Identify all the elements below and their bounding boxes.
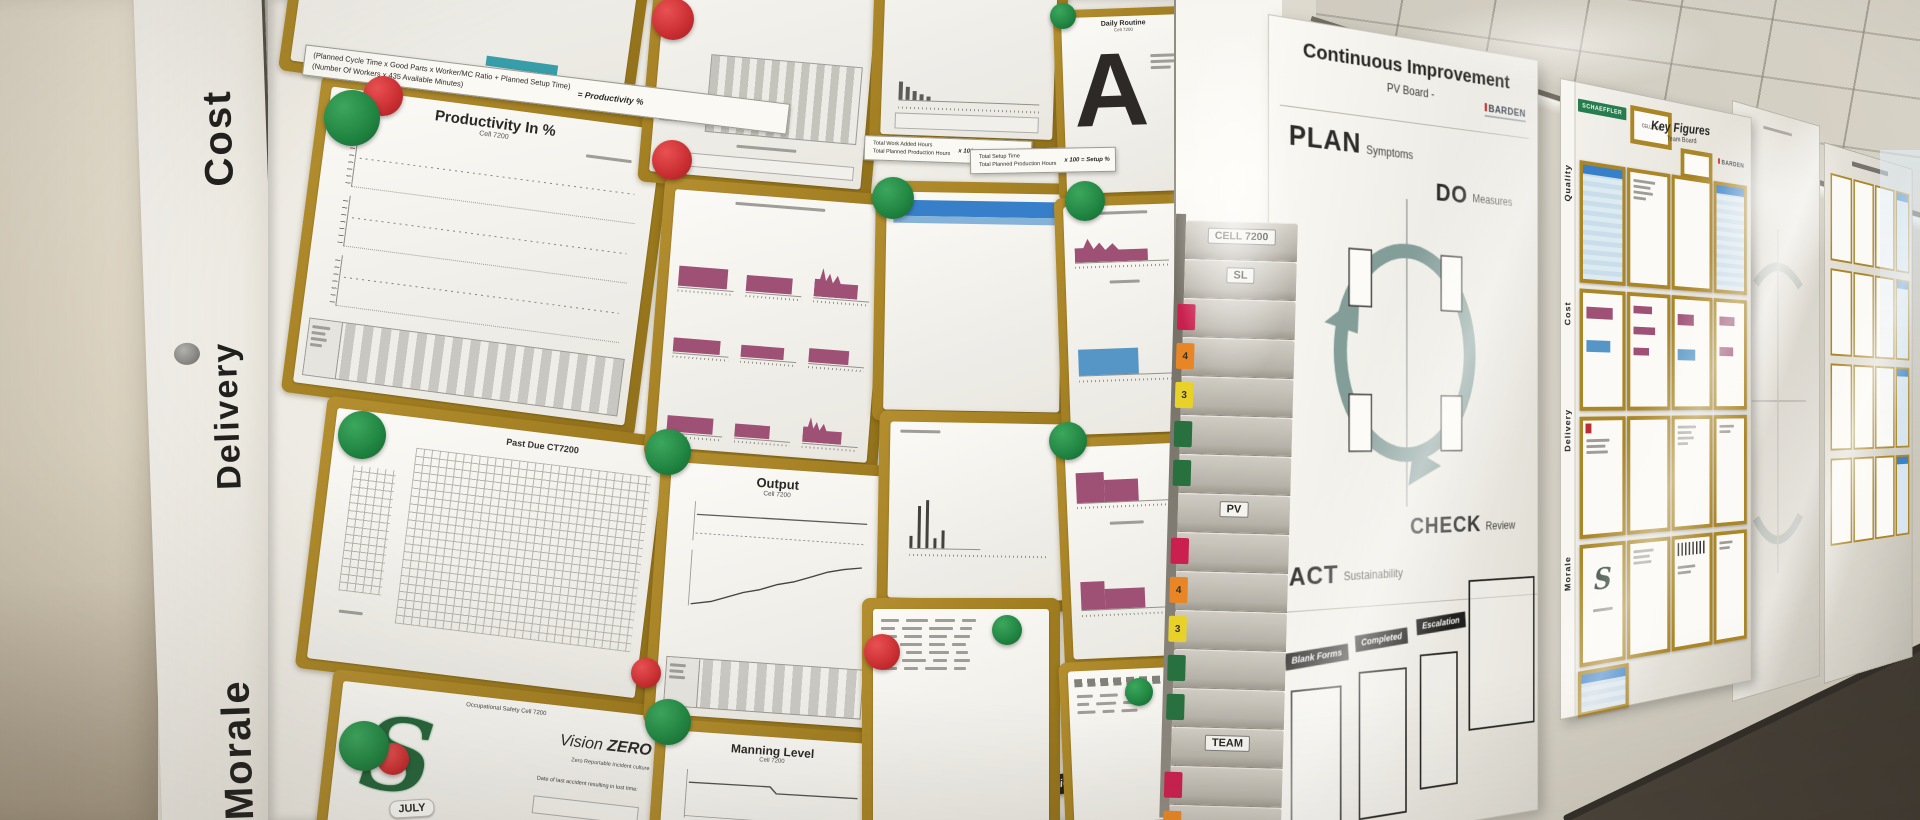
team-label: TEAM: [1205, 735, 1251, 752]
table-doc: [873, 609, 1049, 820]
far-grid-board: [1824, 142, 1912, 684]
vision-zero-date-box: [532, 795, 639, 820]
header-line: [735, 202, 825, 212]
kf-mini-doc-red: [1580, 416, 1626, 539]
kf-mini-bars: [1627, 292, 1670, 411]
green-magnet: [339, 721, 389, 771]
red-magnet: [864, 634, 900, 670]
small-grid-block: [338, 466, 396, 596]
escalation-tag: Escalation: [1416, 612, 1465, 636]
kf-row-morale: Morale: [1563, 556, 1572, 592]
red-tab-chip: [1177, 304, 1196, 330]
caption-line: [736, 145, 796, 153]
large-grid-block: [394, 448, 651, 652]
maroon-bar-row: [1075, 465, 1170, 504]
mini-bar-chart: [673, 304, 733, 358]
kf-mini-blue-table: [1578, 663, 1629, 717]
completed-tag: Completed: [1355, 627, 1408, 652]
kf-mini-bars: [1672, 295, 1713, 410]
pdca-board: Continuous Improvement PV Board - BARDEN…: [1268, 14, 1538, 820]
glass-reflection: [1825, 143, 1912, 683]
mini-bar-chart: [808, 314, 868, 368]
green-magnet: [338, 411, 386, 459]
orange-tab-chip: 4: [1176, 343, 1195, 369]
spreadsheet-subheader: [893, 216, 1055, 226]
left-wall: [0, 0, 158, 820]
green-tab-chip: [1173, 460, 1192, 486]
hallway-scene: Cost Delivery Morale Batch Escalation Co…: [0, 0, 1920, 820]
orange-tab-chip: 4: [1163, 811, 1182, 820]
panel-screw: [174, 342, 201, 365]
mini-bar-chart: [802, 380, 863, 448]
setup-formula-strip: Total Setup Time Total Planned Productio…: [970, 147, 1116, 175]
divider-tab: 4: [1169, 805, 1282, 820]
footer-strip: [894, 112, 1039, 133]
divider-tab: [1183, 298, 1296, 340]
divider-tab: [1178, 454, 1291, 496]
tick-row: [1077, 503, 1171, 509]
kf-mini-doc: [1714, 415, 1747, 527]
divider-tab: [1170, 766, 1283, 808]
output-line-chart: [668, 494, 877, 620]
main-chart-board: Batch Escalation Completed Escalation Fo…: [268, 0, 1183, 820]
past-due-title: Past Due CT7200: [506, 437, 580, 456]
setup-denominator: Total Planned Production Hours: [979, 160, 1056, 169]
kf-mini-grid: [1627, 416, 1670, 535]
left-panel-label-delivery: Delivery: [206, 341, 250, 491]
divider-tab-sl: SL: [1184, 259, 1297, 301]
red-tab-chip: [1170, 538, 1189, 564]
kf-mini-doc: [1672, 415, 1713, 531]
axis-label: [339, 609, 363, 615]
kf-mini-blue-table: [1714, 181, 1747, 295]
left-panel-label-morale: Morale: [213, 679, 263, 820]
formula-result: = Productivity %: [577, 88, 644, 106]
output-table: [663, 656, 864, 720]
month-tag: JULY: [389, 798, 435, 819]
chart-frame-top-cut: [869, 0, 1073, 151]
table-doc-frame: [862, 598, 1060, 820]
escalation-pocket: [1420, 651, 1458, 790]
mid-line: [1110, 520, 1144, 524]
blue-bar-row: [1078, 340, 1173, 376]
mini-bar-chart: [734, 375, 795, 443]
vision-zero-subtitle: Zero Reportable Incident culture: [571, 757, 650, 772]
tick-row: [1082, 611, 1176, 617]
kf-mini-blue-table: [1580, 160, 1626, 286]
table-row-labels: [303, 319, 343, 379]
bar-grid-chart: [655, 189, 887, 463]
green-tab-chip: [1166, 694, 1185, 720]
mini-bar-chart: [666, 369, 727, 437]
oee-fraction: Total Work Added Hours Total Planned Pro…: [873, 140, 951, 158]
setup-result: x 100 = Setup %: [1064, 157, 1110, 164]
tick-row: [1075, 263, 1169, 268]
kf-row-cost: Cost: [1563, 301, 1572, 325]
blue-spreadsheet: [883, 191, 1063, 412]
kf-barden-logo: BARDEN: [1718, 158, 1744, 170]
bar-grid: [666, 220, 874, 448]
chart-doc: [880, 0, 1062, 140]
red-magnet: [652, 140, 692, 180]
divider-tab-team: TEAM: [1171, 727, 1284, 769]
output-chart: Output Cell 7200: [654, 462, 885, 728]
green-tab-chip: [1167, 655, 1186, 681]
mini-bar-chart: [678, 220, 739, 292]
divider-tab: 4: [1182, 337, 1295, 379]
green-tab-chip: [1174, 421, 1193, 447]
vision-zero-title: Vision ZERO: [559, 732, 653, 760]
barden-logo-mark: [1718, 158, 1720, 164]
kf-mini-doc: [1714, 529, 1747, 644]
divider-tab-panel: CELL 7200 SL 4 3 PV 4 3 TEAM 4: [1169, 220, 1298, 820]
blank-forms-pocket: [1291, 685, 1342, 820]
header-line: [1097, 210, 1147, 215]
bar-grid-chart-frame: [643, 177, 898, 474]
large-pocket: [1469, 576, 1535, 731]
divider-tab: 4: [1175, 571, 1288, 613]
green-magnet: [1049, 422, 1087, 460]
completed-pocket: [1359, 667, 1407, 820]
pdca-act: ACT Sustainability: [1289, 558, 1403, 590]
setup-fraction: Total Setup Time Total Planned Productio…: [979, 153, 1057, 170]
green-magnet: [324, 90, 380, 146]
schaeffler-logo: SCHAEFFLER: [1578, 99, 1626, 121]
yellow-tab-chip: 3: [1168, 616, 1187, 642]
vision-zero-note: Date of last accident resulting in lost …: [527, 774, 647, 794]
divider-tab: 3: [1174, 610, 1287, 652]
green-magnet: [1065, 181, 1105, 221]
divider-tab-header: CELL 7200: [1185, 220, 1298, 262]
divider-tab-pv: PV: [1177, 493, 1290, 535]
tick-row: [909, 554, 1046, 558]
oee-denominator: Total Planned Production Hours: [873, 148, 951, 158]
yellow-tab-chip: 3: [1175, 382, 1194, 408]
divider-tab: [1172, 688, 1285, 730]
sl-label: SL: [1226, 267, 1254, 284]
tick-row: [1079, 377, 1173, 382]
divider-tab: [1173, 649, 1286, 691]
divider-tab: [1176, 532, 1289, 574]
bar-chart-frame: [876, 410, 1077, 611]
manning-chart: Manning Level Cell 7200: [656, 730, 881, 820]
header-line: [900, 430, 940, 434]
blank-forms-tag: Blank Forms: [1285, 644, 1349, 671]
kf-mini-bars: [1714, 298, 1747, 410]
kf-mini-doc: [1627, 537, 1670, 660]
cell-label: CELL 7200: [1208, 228, 1276, 246]
mini-bar-chart: [746, 225, 807, 297]
kf-mini-bars: [1580, 288, 1626, 410]
kf-mini-doc: [1627, 167, 1670, 289]
letter-a: A: [1072, 37, 1151, 144]
kf-mini-barcode: [1672, 533, 1713, 652]
maroon-bar-row: [1080, 572, 1175, 611]
manning-line-chart: [669, 764, 870, 820]
kf-left-strip: Quality Cost Delivery Morale: [1561, 79, 1576, 719]
green-magnet: [1050, 3, 1076, 29]
small-bars: [899, 70, 1041, 106]
green-magnet: [1125, 678, 1153, 706]
divider-tab: 3: [1181, 376, 1294, 418]
green-magnet: [872, 177, 914, 219]
thin-bar-chart: [887, 421, 1066, 600]
orange-tab-chip: 4: [1169, 577, 1188, 603]
red-tab-chip: [1164, 772, 1183, 798]
pdca-cycle-diagram: [1312, 187, 1495, 511]
red-magnet: [652, 0, 694, 40]
mini-bar-chart: [740, 309, 800, 363]
pv-label: PV: [1219, 501, 1248, 518]
kf-mini-grid: [1672, 174, 1713, 292]
kf-mini-s-card: S: [1580, 541, 1626, 668]
green-magnet: [992, 615, 1022, 645]
key-figures-board: Quality Cost Delivery Morale SCHAEFFLER …: [1560, 78, 1751, 720]
red-magnet: [631, 658, 661, 688]
kf-row-quality: Quality: [1563, 164, 1572, 203]
maroon-bar-row: [1074, 229, 1169, 263]
pdca-plan: PLAN Symptoms: [1289, 122, 1413, 165]
thin-bars: [909, 477, 981, 550]
output-chart-frame: Output Cell 7200: [643, 450, 898, 740]
green-magnet: [645, 429, 691, 475]
kf-row-delivery: Delivery: [1563, 409, 1572, 452]
mini-bar-chart: [813, 230, 874, 302]
barden-logo-mark: [1485, 103, 1487, 112]
divider-tab: [1179, 415, 1292, 457]
green-magnet: [645, 699, 691, 745]
mid-line: [1110, 280, 1140, 284]
pdca-check: CHECK Review: [1410, 512, 1515, 538]
left-panel-label-cost: Cost: [195, 89, 243, 187]
